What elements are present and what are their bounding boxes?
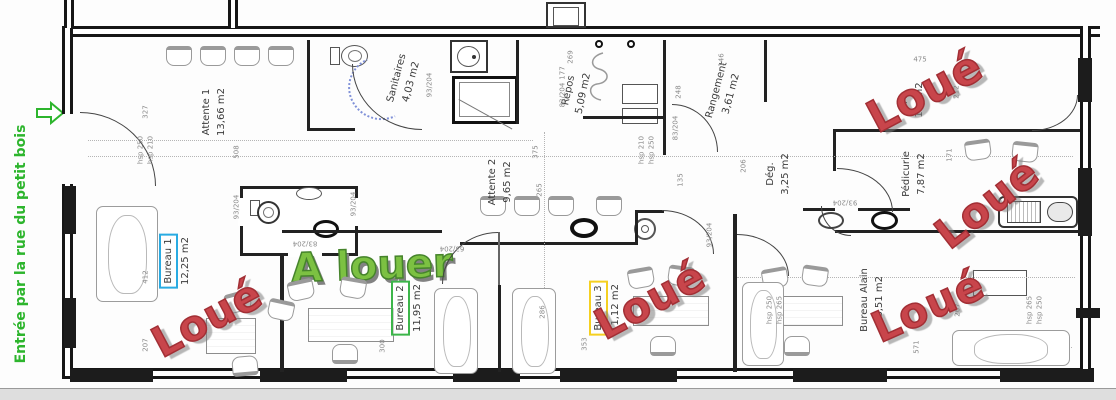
window-sill	[1076, 308, 1100, 318]
shower-tray-inner	[459, 82, 510, 117]
chair-icon	[338, 276, 367, 300]
dimension-label: 93/204	[427, 73, 434, 98]
bottom-margin-strip	[0, 388, 1116, 400]
room-area: 11,95 m2	[410, 280, 425, 335]
interior-wall	[583, 116, 665, 119]
room-area: 9,65 m2	[500, 159, 515, 206]
chair-icon	[266, 298, 296, 323]
wc-sink	[296, 187, 322, 200]
chair-icon	[166, 46, 192, 66]
chair-icon	[200, 46, 226, 66]
chair-icon	[231, 355, 259, 377]
window-sill	[560, 369, 677, 382]
chair-icon	[964, 138, 993, 161]
interior-wall	[663, 40, 666, 155]
interior-wall	[638, 210, 664, 213]
window-sill	[1078, 58, 1092, 102]
room-label-bureau-1: Bureau 112,25 m2	[159, 233, 193, 288]
door-swing-arc	[80, 112, 156, 186]
dimension-label: 93/204	[234, 195, 241, 220]
door-swing-arc	[821, 206, 851, 236]
dimension-label: 93/204	[833, 199, 858, 206]
dimension-label: hsp 210	[639, 136, 646, 164]
room-label-attente-2: Attente 29,65 m2	[485, 159, 515, 206]
door-dot	[627, 40, 635, 48]
room-area: 3,25 m2	[778, 153, 793, 195]
room-name: Attente 2	[485, 159, 500, 206]
dimension-label: 207	[143, 338, 150, 351]
dimension-label: hsp 265	[1027, 296, 1034, 324]
room-area: 12,25 m2	[178, 233, 193, 288]
outer-wall	[62, 26, 73, 114]
dimension-label: hsp 265	[777, 296, 784, 324]
dimension-label: 83/204	[293, 240, 318, 247]
dimension-label: hsp 250	[649, 136, 656, 164]
dimension-label: 375	[533, 145, 540, 158]
chair-icon	[650, 336, 676, 356]
sink-drain-dot	[472, 55, 476, 59]
dimension-label: hsp 250	[138, 136, 145, 164]
wc-oval	[313, 220, 339, 238]
room-label-pedicurie: Pédicurie7,87 m2	[899, 151, 929, 197]
interior-wall	[833, 129, 836, 171]
room-label-rangement: Rangement3,61 m2	[702, 60, 746, 124]
chimney-stub	[64, 0, 74, 28]
interior-wall	[498, 285, 501, 372]
massage-table-icon	[952, 330, 1070, 366]
dimension-label: 206	[741, 159, 748, 172]
dimension-label: 412	[143, 270, 150, 283]
dimension-label: hsp 210	[148, 136, 155, 164]
chair-icon	[286, 278, 316, 303]
room-label-degagement: Dég.3,25 m2	[763, 153, 793, 195]
dimension-label: 63/204	[440, 245, 465, 252]
door-swing-arc	[1032, 95, 1078, 131]
repos-table	[622, 84, 658, 104]
dimension-label: 135	[678, 173, 685, 186]
dimension-label: 327	[143, 105, 150, 118]
door-leaf	[498, 232, 500, 285]
chair-icon	[596, 196, 622, 216]
toilet-bowl-inner	[348, 50, 362, 62]
toilet-tank	[330, 47, 340, 65]
wc-bowl-inner	[263, 207, 274, 218]
massage-table-icon	[434, 288, 478, 374]
pedicure-chair-headrest	[1047, 202, 1073, 222]
dimension-label: 146	[719, 53, 726, 66]
room-name: Pédicurie	[899, 151, 914, 197]
chimney-inner	[553, 7, 579, 26]
floor-plan: Entrée par la rue du petit bois A louer …	[0, 0, 1116, 400]
room-name: Dég.	[763, 162, 778, 185]
round-table	[570, 218, 598, 238]
dimension-label: 171	[947, 148, 954, 161]
dimension-label: 269	[568, 50, 575, 63]
chair-icon	[332, 344, 358, 364]
chair-icon	[548, 196, 574, 216]
desk-icon	[308, 308, 394, 342]
window-sill	[70, 369, 153, 382]
dimension-label: 571	[914, 340, 921, 353]
dimension-label: 177	[560, 66, 567, 79]
massage-table-icon	[512, 288, 556, 374]
entrance-street-label: Entrée par la rue du petit bois	[13, 125, 29, 364]
interior-wall	[282, 230, 442, 233]
window-sill	[793, 369, 887, 382]
room-area: 7,87 m2	[914, 151, 929, 197]
dimension-label: 286	[540, 305, 547, 318]
window-sill	[260, 369, 347, 382]
loue-stamp-bureau-3: Loué	[586, 251, 713, 350]
dimension-label: 248	[676, 85, 683, 98]
dimension-label: 93/204	[351, 192, 358, 217]
door-dot	[595, 40, 603, 48]
interior-wall	[307, 40, 310, 130]
massage-table-icon	[96, 206, 158, 302]
chair-icon	[784, 336, 810, 356]
dimension-label: 93/204	[707, 223, 714, 248]
interior-wall	[307, 128, 355, 131]
room-area: 13,66 m2	[214, 88, 229, 136]
window-sill	[1078, 168, 1092, 236]
room-label-attente-1: Attente 113,66 m2	[199, 88, 229, 136]
floor-drain-inner	[641, 225, 649, 233]
room-name: Bureau 1	[159, 233, 178, 288]
chair-icon	[514, 196, 540, 216]
chimney-stub	[228, 0, 238, 28]
dimension-label: 508	[234, 145, 241, 158]
dimension-label: hsp 250	[767, 296, 774, 324]
window-sill	[1000, 369, 1094, 382]
interior-wall	[516, 40, 519, 124]
a-louer-overlay: A louer	[291, 240, 454, 292]
dimension-label: 83/204	[560, 83, 567, 108]
dimension-label: 300	[380, 339, 387, 352]
dimension-label: 83/204	[673, 116, 680, 141]
room-name: Bureau 2	[391, 280, 410, 335]
dimension-label: hsp 250	[1037, 296, 1044, 324]
sink-bowl	[457, 46, 480, 67]
chair-icon	[801, 264, 830, 287]
interior-wall	[764, 40, 767, 102]
room-name: Attente 1	[199, 89, 214, 136]
deg-oval	[871, 211, 898, 230]
guide-line	[88, 140, 533, 141]
window-sill	[64, 186, 76, 234]
window-sill	[64, 298, 76, 348]
room-label-bureau-2: Bureau 211,95 m2	[391, 280, 425, 335]
chair-icon	[234, 46, 260, 66]
dimension-label: 265	[537, 183, 544, 196]
chair-icon	[268, 46, 294, 66]
dimension-label: 353	[582, 337, 589, 350]
interior-wall	[635, 210, 638, 245]
